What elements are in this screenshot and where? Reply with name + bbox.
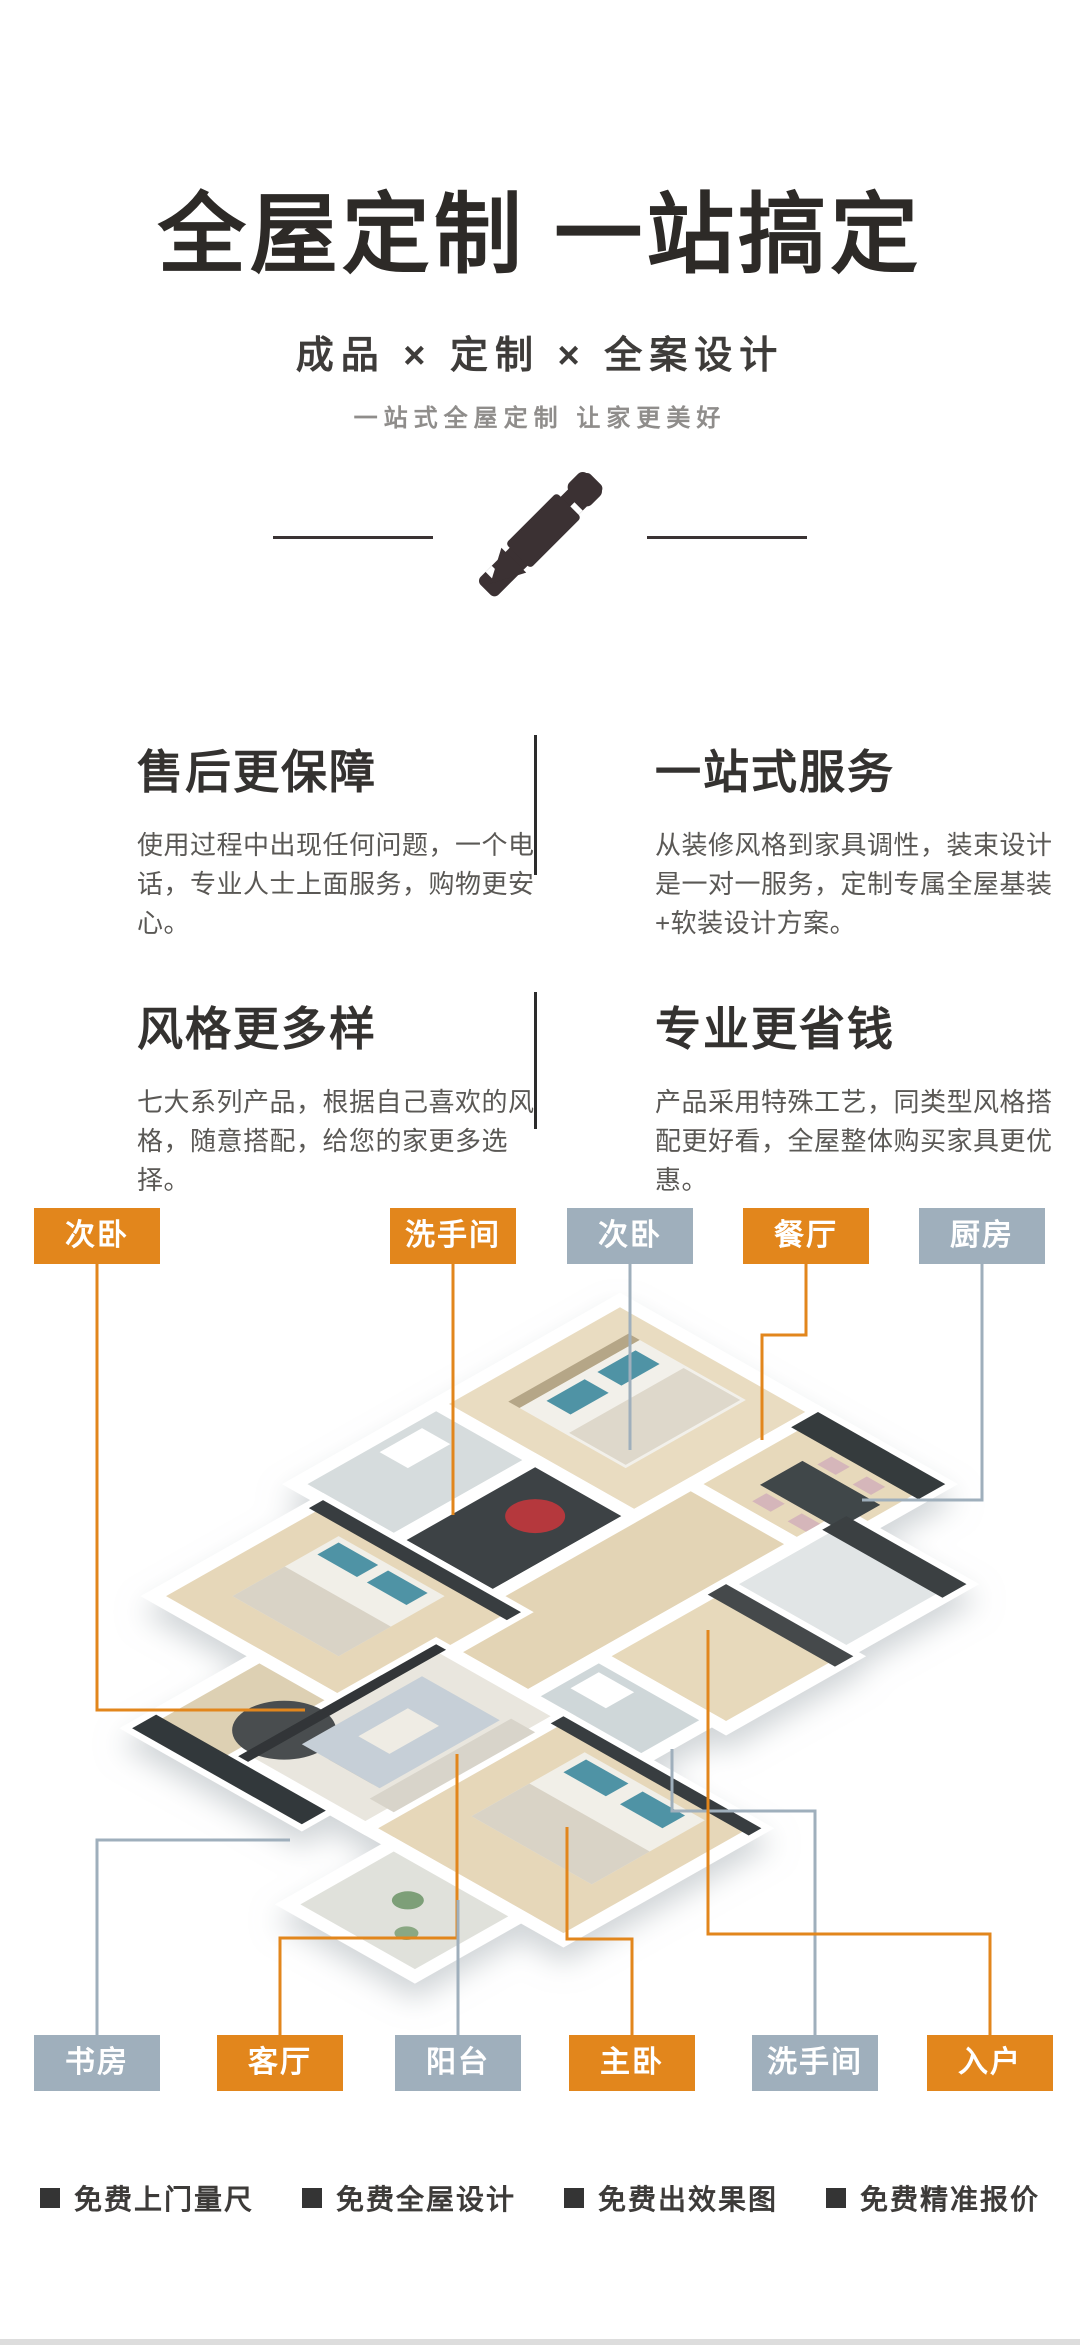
page-tagline: 一站式全屋定制 让家更美好 — [0, 398, 1080, 433]
square-bullet-icon — [302, 2188, 322, 2208]
feature-divider-top — [534, 735, 537, 875]
feature-desc: 产品采用特殊工艺，同类型风格搭配更好看，全屋整体购买家具更优惠。 — [655, 1083, 1057, 1200]
feature-title: 风格更多样 — [137, 993, 539, 1059]
bottom-edge-bar — [0, 2339, 1080, 2345]
page-title: 全屋定制 一站搞定 — [0, 164, 1080, 291]
checklist-item: 免费精准报价 — [826, 2178, 1040, 2218]
room-label-bedroom2: 次卧 — [34, 1208, 160, 1264]
room-label-bedroom3: 次卧 — [567, 1208, 693, 1264]
poster-page: 全屋定制 一站搞定 成品 × 定制 × 全案设计 一站式全屋定制 让家更美好 — [0, 0, 1080, 2345]
square-bullet-icon — [564, 2188, 584, 2208]
room-label-balcony: 阳台 — [395, 2035, 521, 2091]
feature-onestop: 一站式服务 从装修风格到家具调性，装束设计是一对一服务，定制专属全屋基装+软装设… — [655, 736, 1057, 943]
feature-title: 一站式服务 — [655, 736, 1057, 802]
feature-title: 售后更保障 — [137, 736, 539, 802]
square-bullet-icon — [40, 2188, 60, 2208]
pencil-ruler-icon — [462, 448, 618, 620]
room-label-entry: 入户 — [927, 2035, 1053, 2091]
checklist-item-label: 免费上门量尺 — [74, 2178, 254, 2218]
feature-styles: 风格更多样 七大系列产品，根据自己喜欢的风格，随意搭配，给您的家更多选择。 — [137, 993, 539, 1200]
page-subtitle: 成品 × 定制 × 全案设计 — [0, 324, 1080, 379]
room-label-living: 客厅 — [217, 2035, 343, 2091]
services-checklist: 免费上门量尺 免费全屋设计 免费出效果图 免费精准报价 — [0, 2178, 1080, 2218]
square-bullet-icon — [826, 2188, 846, 2208]
leader-study — [97, 1840, 290, 2035]
checklist-item-label: 免费全屋设计 — [336, 2178, 516, 2218]
room-label-study: 书房 — [34, 2035, 160, 2091]
room-label-kitchen: 厨房 — [919, 1208, 1045, 1264]
feature-title: 专业更省钱 — [655, 993, 1057, 1059]
checklist-item: 免费全屋设计 — [302, 2178, 516, 2218]
feature-divider-bottom — [534, 992, 537, 1129]
divider-line-left — [273, 536, 433, 539]
room-label-master: 主卧 — [569, 2035, 695, 2091]
room-label-bathroom-top: 洗手间 — [390, 1208, 516, 1264]
checklist-item-label: 免费精准报价 — [860, 2178, 1040, 2218]
checklist-item: 免费上门量尺 — [40, 2178, 254, 2218]
feature-aftersales: 售后更保障 使用过程中出现任何问题，一个电话，专业人士上面服务，购物更安心。 — [137, 736, 539, 943]
feature-desc: 从装修风格到家具调性，装束设计是一对一服务，定制专属全屋基装+软装设计方案。 — [655, 826, 1057, 943]
feature-savings: 专业更省钱 产品采用特殊工艺，同类型风格搭配更好看，全屋整体购买家具更优惠。 — [655, 993, 1057, 1200]
floorplan-illustration — [0, 1200, 1080, 2345]
feature-desc: 使用过程中出现任何问题，一个电话，专业人士上面服务，购物更安心。 — [137, 826, 539, 943]
feature-desc: 七大系列产品，根据自己喜欢的风格，随意搭配，给您的家更多选择。 — [137, 1083, 539, 1200]
room-label-dining: 餐厅 — [743, 1208, 869, 1264]
checklist-item: 免费出效果图 — [564, 2178, 778, 2218]
room-label-bathroom-bottom: 洗手间 — [752, 2035, 878, 2091]
divider-line-right — [647, 536, 807, 539]
checklist-item-label: 免费出效果图 — [598, 2178, 778, 2218]
